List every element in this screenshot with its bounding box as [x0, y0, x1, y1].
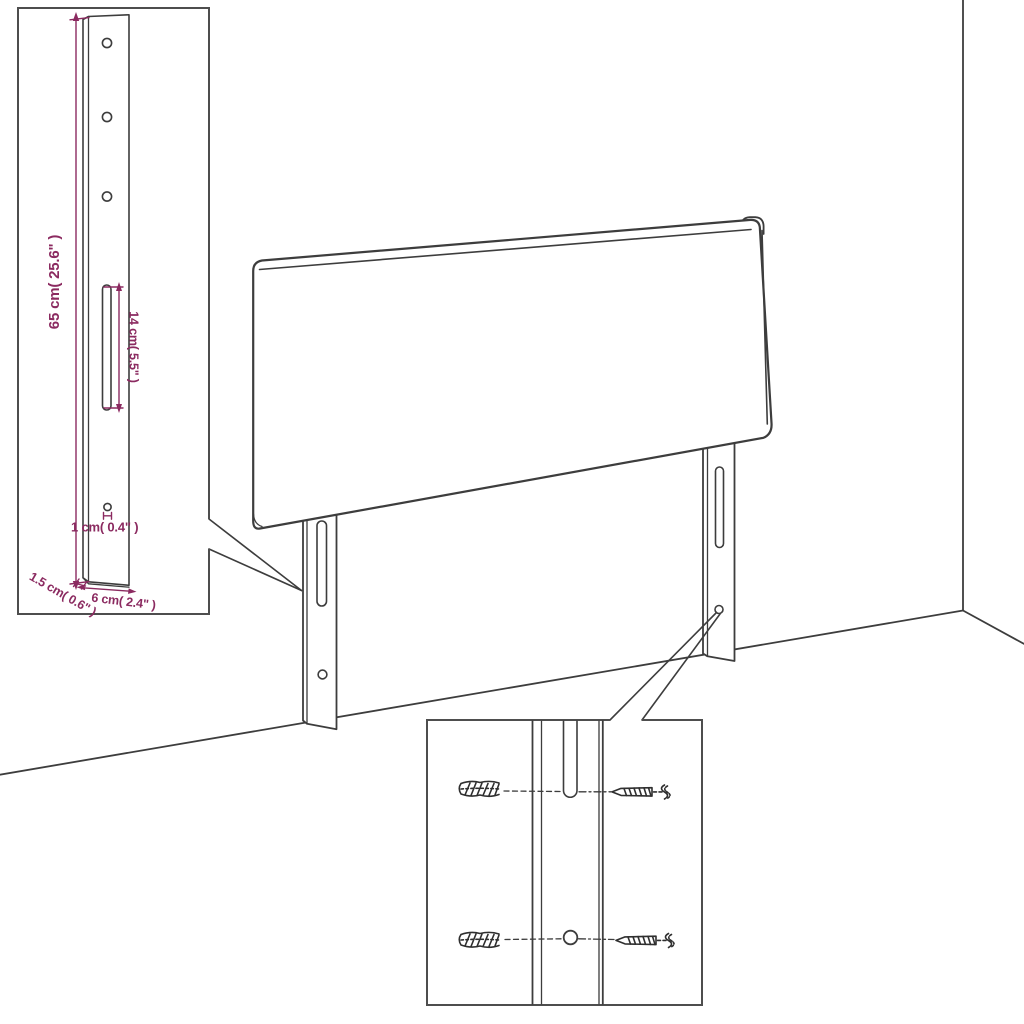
slot-dimension-label: 14 cm( 5.5" ) [127, 311, 141, 382]
leader-top-left [504, 791, 561, 792]
headboard-left-leg [303, 505, 337, 729]
hardware-callout-border [427, 720, 702, 1005]
strip-hole [564, 931, 578, 945]
strip-slot [564, 721, 578, 797]
hole-dimension-label: 1 cm( 0.4" ) [71, 520, 138, 535]
leg-strip-detail [533, 721, 603, 1004]
height-arrow-top [73, 12, 79, 21]
floor-edge-right [963, 611, 1024, 646]
alignment-leaders [504, 791, 614, 940]
bracket-callout-pointer [209, 519, 302, 591]
diagram-stage: 65 cm( 25.6" ) 14 cm( 5.5" ) 1 cm( 0.4" … [0, 0, 1024, 1024]
headboard-panel [253, 220, 771, 529]
width-dimension-line [83, 588, 130, 591]
leader-bottom-right [579, 939, 615, 940]
wall-plug-bottom-icon [459, 932, 499, 947]
hardware-callout-box [427, 720, 702, 1005]
height-dimension-label: 65 cm( 25.6" ) [46, 235, 63, 330]
floor-edge-left [0, 611, 963, 776]
screw-top-icon [612, 785, 670, 799]
headboard-panel-outline [253, 220, 771, 529]
bracket-callout-box: 65 cm( 25.6" ) 14 cm( 5.5" ) 1 cm( 0.4" … [18, 8, 209, 619]
wall-plug-top-icon [459, 781, 499, 796]
width-arrow-right [128, 588, 137, 594]
screw-bottom-icon [616, 934, 674, 948]
bracket-drawing [83, 15, 129, 587]
left-leg-body [303, 505, 337, 729]
bracket-body [83, 15, 129, 586]
headboard-right-leg [703, 435, 735, 661]
leader-bottom-left [505, 939, 562, 940]
assembly-diagram: 65 cm( 25.6" ) 14 cm( 5.5" ) 1 cm( 0.4" … [0, 0, 1024, 1024]
pointer-line-left [610, 613, 717, 721]
pointer-line-right [642, 614, 720, 720]
width-dimension-label: 6 cm( 2.4" ) [91, 591, 157, 613]
